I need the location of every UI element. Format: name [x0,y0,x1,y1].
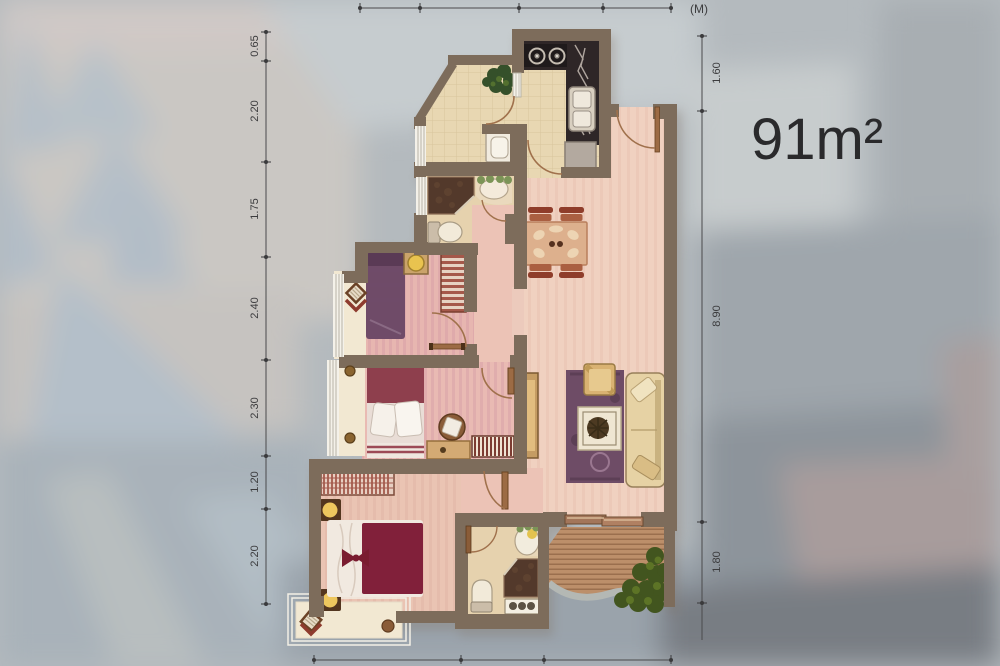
svg-text:2.40: 2.40 [249,297,261,318]
svg-text:1.60: 1.60 [711,62,723,83]
svg-text:1.80: 1.80 [711,551,723,572]
svg-text:0.65: 0.65 [249,35,261,56]
svg-text:1.20: 1.20 [249,471,261,492]
svg-text:91m²: 91m² [751,107,883,172]
svg-text:(M): (M) [690,2,708,16]
svg-text:1.75: 1.75 [249,198,261,219]
svg-text:8.90: 8.90 [711,305,723,326]
svg-text:2.20: 2.20 [249,100,261,121]
svg-text:2.20: 2.20 [249,545,261,566]
svg-text:2.30: 2.30 [249,397,261,418]
